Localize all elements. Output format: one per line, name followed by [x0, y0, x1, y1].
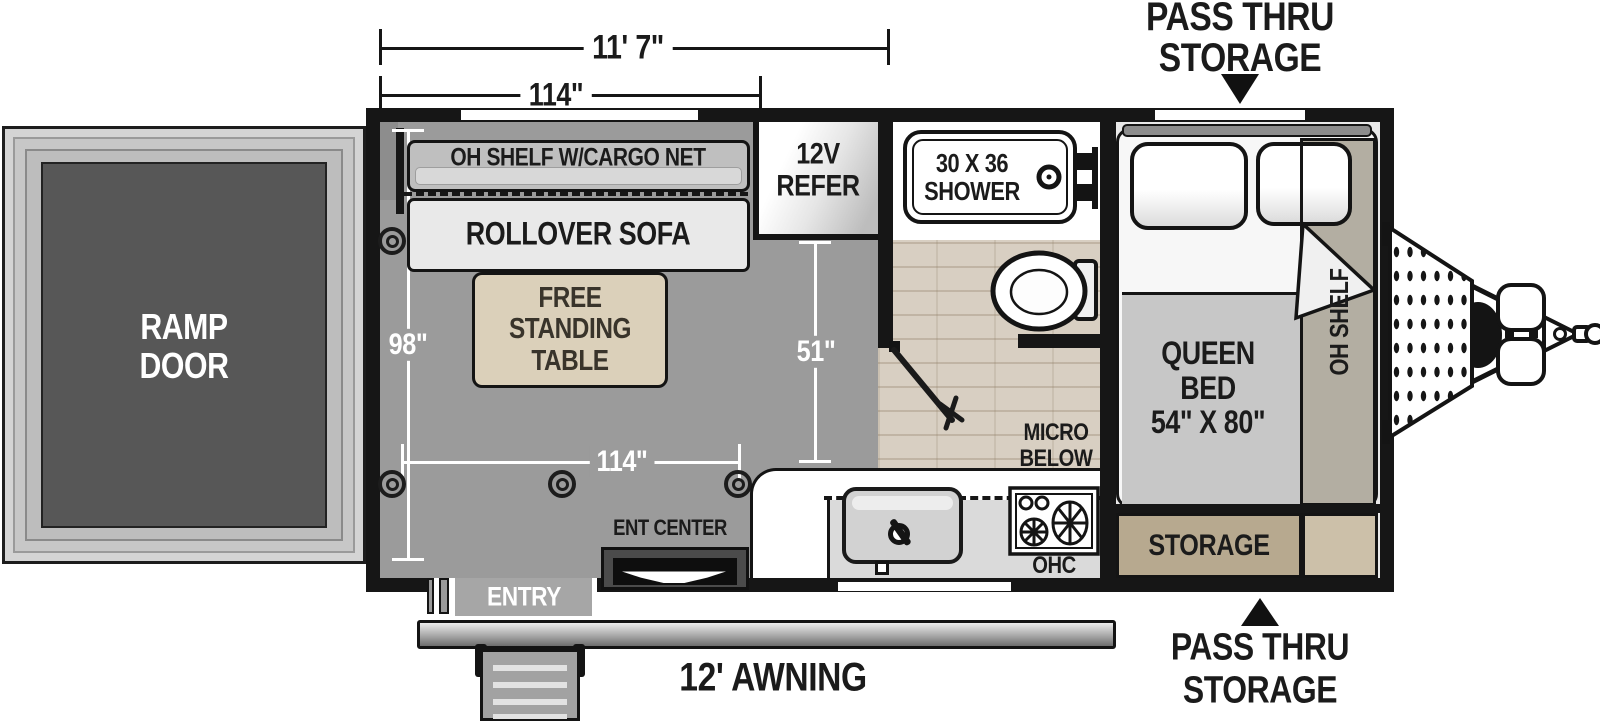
galley-window — [838, 582, 1011, 591]
front-wall-stub — [396, 128, 404, 214]
floorplan-canvas: 11' 7" 114" PASS THRU STORAGE PASS THRU … — [0, 0, 1600, 721]
garage-window — [461, 110, 698, 120]
entry-steps — [480, 649, 580, 721]
ramp-door-label: RAMP DOOR — [139, 308, 228, 386]
dim-garage-bottom-line — [402, 461, 740, 464]
dim-garage-top-tick-left — [379, 76, 382, 112]
step-tread — [493, 714, 567, 719]
bath-door-swing — [894, 350, 952, 420]
pillow — [1256, 142, 1352, 226]
sink-basin-highlight — [852, 496, 953, 510]
bed-headboard — [1122, 124, 1372, 137]
dim-overall-tick-left — [379, 29, 382, 65]
step-tread — [493, 699, 567, 705]
dim-garage-top-tick-right — [759, 76, 762, 112]
micro-below-label: MICRO BELOW — [1020, 420, 1093, 472]
oh-shelf-cargo-net-label: OH SHELF W/CARGO NET — [450, 145, 705, 172]
entry-door-jamb — [427, 578, 434, 614]
faucet-base — [875, 561, 889, 575]
pass-thru-top-label: PASS THRU STORAGE — [1146, 0, 1334, 79]
under-bed-storage-side — [1302, 513, 1378, 578]
propane-tank-icon — [1498, 285, 1544, 330]
dim-width-label: 98" — [382, 329, 434, 361]
queen-bed-label: QUEEN BED 54" X 80" — [1151, 336, 1265, 440]
storage-label: STORAGE — [1148, 530, 1269, 562]
step-tread — [493, 665, 567, 671]
tie-down-ring-icon — [378, 470, 406, 498]
tongue-hitch — [1380, 195, 1600, 475]
tie-down-ring-icon — [724, 470, 752, 498]
ent-center-label: ENT CENTER — [613, 516, 727, 540]
dim-garage-bottom-label: 114" — [590, 446, 654, 478]
rollover-sofa-label: ROLLOVER SOFA — [466, 217, 691, 252]
ohc-edge — [827, 500, 830, 578]
awning-label: 12' AWNING — [679, 656, 866, 699]
bed-platform-edge — [1116, 504, 1380, 513]
propane-tank-icon — [1498, 339, 1544, 384]
hitch-ball — [1586, 325, 1600, 343]
bedroom-wall — [1100, 122, 1116, 578]
refrigerator-label: 12V REFER — [776, 139, 859, 204]
tie-down-ring-icon — [378, 227, 406, 255]
dim-overall-label: 11' 7" — [584, 30, 673, 67]
bedroom-oh-shelf-label: OH SHELF — [1325, 268, 1353, 375]
dim-galley-tick-bottom — [799, 460, 831, 463]
dim-width-tick-bottom — [392, 558, 424, 561]
sofa-fold-line — [404, 192, 748, 196]
cooktop-icon — [1008, 486, 1100, 556]
step-tread — [493, 682, 567, 688]
entry-door-jamb — [439, 578, 449, 614]
awning-rail — [417, 620, 1116, 649]
entry-label: ENTRY — [487, 582, 561, 611]
pillow — [1130, 142, 1248, 230]
dim-width-tick-top — [392, 129, 424, 132]
ohc-label: OHC — [1032, 553, 1076, 579]
pass-thru-top-arrow-icon — [1221, 74, 1259, 104]
pass-thru-bottom-arrow-icon — [1241, 598, 1279, 626]
dim-overall-tick-right — [887, 29, 890, 65]
tie-down-ring-icon — [548, 470, 576, 498]
dim-galley-label: 51" — [790, 336, 842, 368]
dim-galley-tick-top — [799, 241, 831, 244]
ent-center-cabinet — [601, 547, 749, 590]
free-standing-table-label: FREE STANDING TABLE — [509, 283, 631, 377]
pass-thru-bottom-label: PASS THRU STORAGE — [1171, 626, 1349, 711]
pass-thru-opening-top — [1155, 110, 1305, 120]
